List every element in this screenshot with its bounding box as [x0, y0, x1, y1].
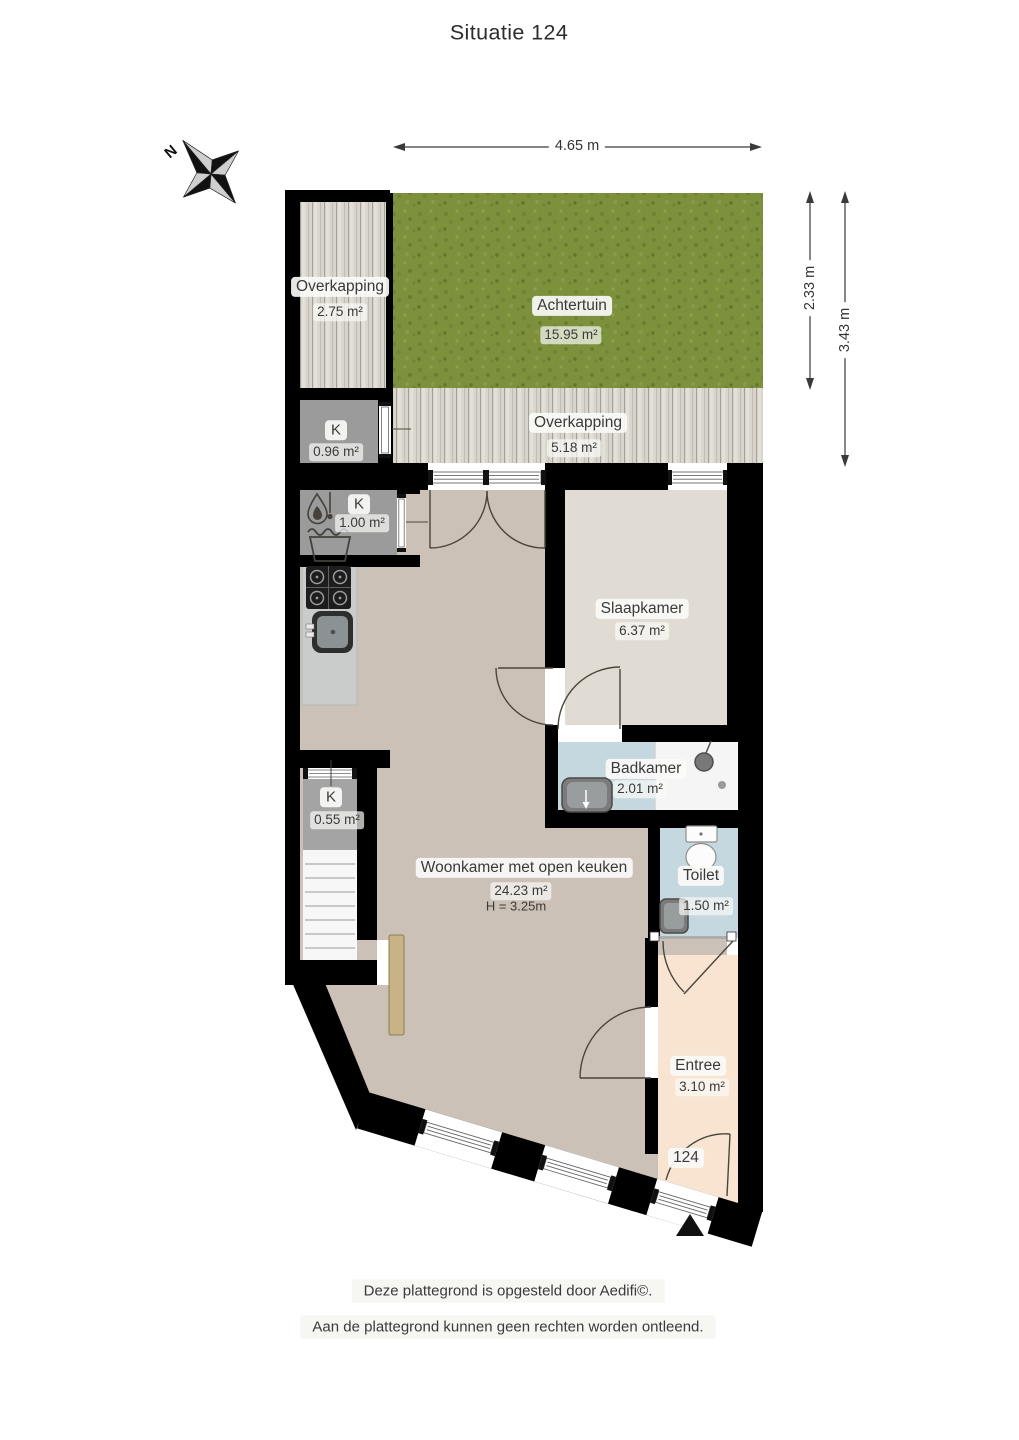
room-label-entree: Entree — [670, 1056, 726, 1076]
house-number-label: 124 — [668, 1148, 704, 1168]
room-area-overkapping-left: 2.75 m² — [313, 303, 367, 321]
footer-line-1: Deze plattegrond is opgesteld door Aedif… — [352, 1280, 665, 1303]
room-label-achtertuin: Achtertuin — [532, 296, 612, 316]
toilet-icon — [686, 826, 717, 871]
room-height-woonkamer: H = 3.25m — [482, 899, 550, 916]
room-area-closet-096: 0.96 m² — [309, 443, 363, 461]
stair-passage-opening — [377, 940, 390, 985]
floors — [300, 193, 763, 1205]
room-area-closet-100: 1.00 m² — [335, 514, 389, 532]
page-title: Situatie 124 — [450, 21, 568, 46]
room-label-closet-100: K — [348, 494, 370, 514]
entry-door-opening — [645, 1007, 658, 1078]
bathroom-door-opening — [558, 725, 622, 742]
footer-line-2: Aan de plattegrond kunnen geen rechten w… — [300, 1316, 715, 1339]
kitchen-sink-icon — [306, 611, 353, 653]
room-area-toilet: 1.50 m² — [679, 897, 733, 915]
compass-rose-icon — [155, 117, 263, 226]
radiator — [389, 935, 404, 1035]
room-label-closet-096: K — [325, 420, 347, 440]
dimension-width-top: 4.65 m — [549, 138, 605, 154]
room-area-woonkamer: 24.23 m² — [490, 882, 551, 900]
room-area-slaapkamer: 6.37 m² — [615, 622, 669, 640]
room-label-woonkamer: Woonkamer met open keuken — [416, 858, 633, 878]
stove-icon — [306, 566, 351, 609]
room-area-overkapping-back: 5.18 m² — [547, 439, 601, 457]
room-label-badkamer: Badkamer — [606, 759, 687, 779]
room-label-overkapping-left: Overkapping — [291, 277, 389, 297]
bathroom-sink-icon — [562, 778, 612, 812]
room-label-slaapkamer: Slaapkamer — [596, 599, 689, 619]
room-label-overkapping-back: Overkapping — [529, 413, 627, 433]
dimension-depth-total: 3.43 m — [837, 302, 853, 358]
floorplan-canvas — [0, 0, 1019, 1440]
room-area-entree: 3.10 m² — [675, 1078, 729, 1096]
room-area-achtertuin: 15.95 m² — [540, 326, 601, 344]
dimension-depth-garden: 2.33 m — [802, 260, 818, 316]
room-area-closet-055: 0.55 m² — [310, 811, 364, 829]
room-area-badkamer: 2.01 m² — [613, 780, 667, 798]
floorplan-page: Situatie 124 N 4.65 m 2.33 m 3.43 m Over… — [0, 0, 1019, 1440]
room-label-toilet: Toilet — [678, 866, 724, 886]
room-label-closet-055: K — [320, 787, 342, 807]
bedroom-door-opening — [545, 668, 565, 725]
